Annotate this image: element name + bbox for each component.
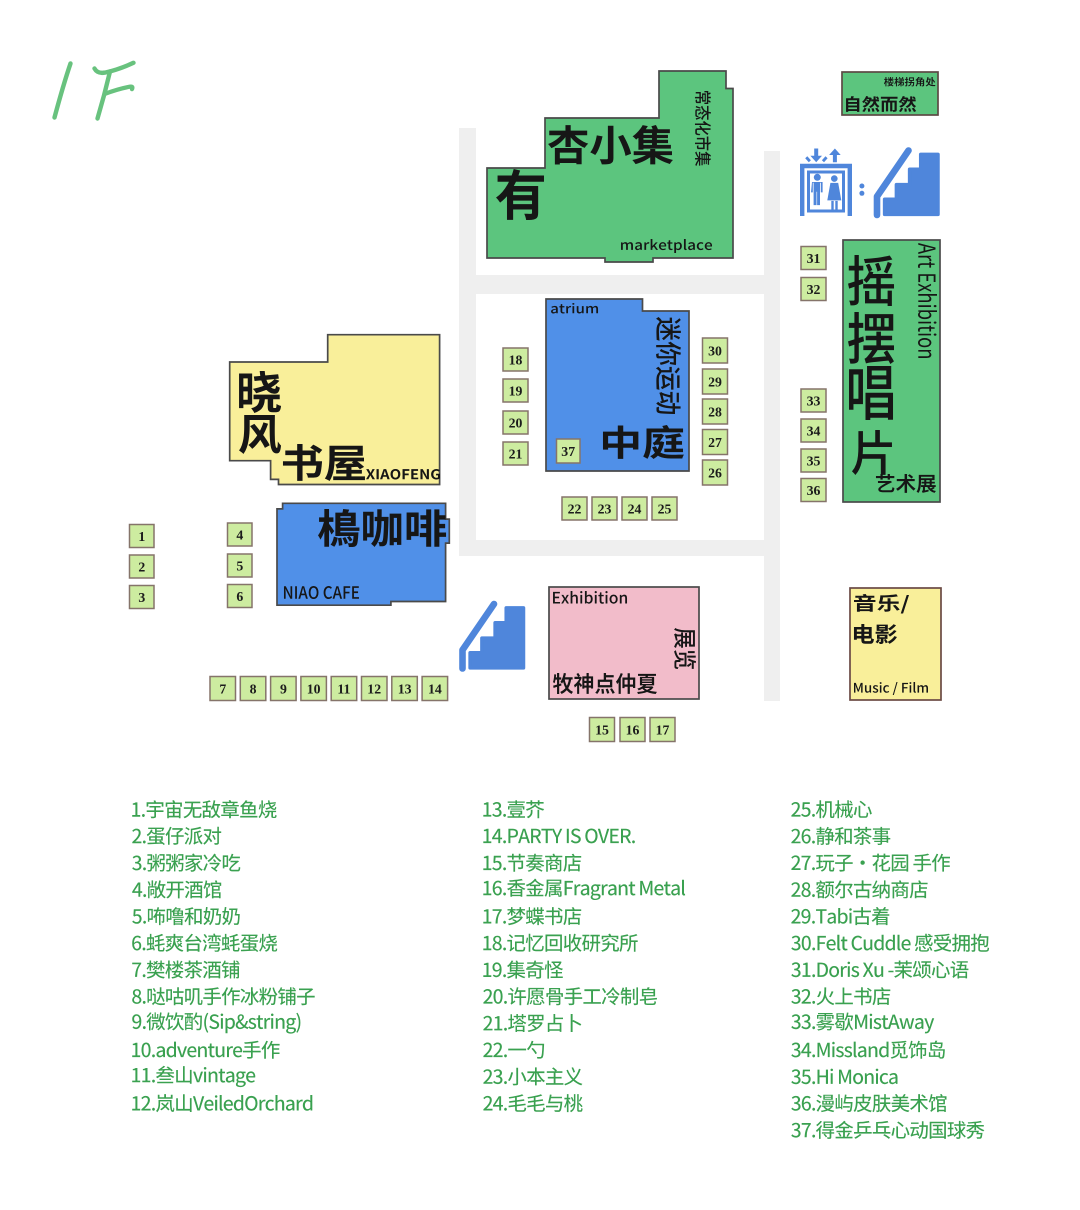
- svg-text:37: 37: [561, 444, 575, 459]
- svg-text:36: 36: [807, 483, 821, 498]
- svg-text:34: 34: [807, 424, 821, 439]
- svg-text:17: 17: [656, 723, 670, 738]
- svg-text:8: 8: [250, 682, 257, 697]
- svg-text:28: 28: [708, 405, 722, 420]
- svg-text:30: 30: [708, 344, 722, 359]
- svg-text:16: 16: [626, 723, 640, 738]
- svg-text:10: 10: [307, 682, 321, 697]
- svg-text:7: 7: [219, 682, 226, 697]
- svg-text:18: 18: [509, 353, 523, 368]
- svg-text:26: 26: [708, 466, 722, 481]
- svg-text:14: 14: [428, 682, 442, 697]
- svg-text:13: 13: [398, 682, 412, 697]
- svg-text:2: 2: [138, 560, 145, 575]
- svg-text:9: 9: [280, 682, 287, 697]
- svg-text:31: 31: [807, 251, 821, 266]
- svg-text:1: 1: [138, 529, 145, 544]
- svg-text:11: 11: [337, 682, 350, 697]
- svg-text:4: 4: [236, 528, 243, 543]
- svg-text:24: 24: [628, 502, 642, 517]
- svg-text:20: 20: [509, 416, 523, 431]
- svg-text:12: 12: [367, 682, 381, 697]
- svg-text:32: 32: [807, 282, 821, 297]
- svg-text:19: 19: [509, 384, 523, 399]
- svg-text:22: 22: [568, 502, 582, 517]
- svg-text:29: 29: [708, 375, 722, 390]
- svg-text:33: 33: [807, 394, 821, 409]
- svg-text:3: 3: [138, 590, 145, 605]
- svg-text:15: 15: [595, 723, 609, 738]
- svg-text:27: 27: [708, 435, 722, 450]
- svg-text:25: 25: [658, 502, 672, 517]
- svg-text:21: 21: [509, 447, 523, 462]
- svg-text:6: 6: [236, 589, 243, 604]
- svg-text:23: 23: [598, 502, 612, 517]
- svg-text:5: 5: [236, 559, 243, 574]
- svg-text:35: 35: [807, 454, 821, 469]
